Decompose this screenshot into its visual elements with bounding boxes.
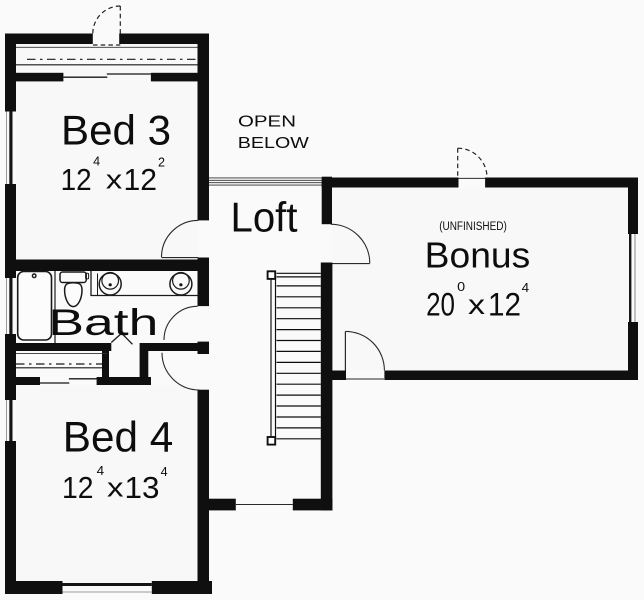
- svg-text:20: 20: [426, 287, 455, 323]
- svg-text:4: 4: [522, 281, 530, 295]
- svg-text:Loft: Loft: [231, 194, 298, 241]
- svg-text:Bath: Bath: [48, 302, 158, 343]
- svg-text:BELOW: BELOW: [238, 135, 309, 152]
- svg-text:OPEN: OPEN: [238, 114, 296, 131]
- svg-text:x: x: [468, 289, 485, 320]
- svg-text:Bed 4: Bed 4: [63, 414, 174, 462]
- svg-text:x: x: [107, 473, 124, 503]
- svg-text:0: 0: [457, 280, 465, 294]
- svg-text:4: 4: [93, 155, 100, 169]
- svg-text:12: 12: [124, 163, 158, 197]
- svg-text:12: 12: [62, 471, 94, 505]
- svg-text:Bed 3: Bed 3: [61, 107, 171, 154]
- svg-text:4: 4: [97, 464, 105, 478]
- svg-text:13: 13: [125, 471, 160, 505]
- svg-text:4: 4: [161, 465, 168, 479]
- svg-text:2: 2: [158, 156, 165, 170]
- svg-text:Bonus: Bonus: [425, 234, 531, 275]
- svg-text:x: x: [106, 165, 123, 195]
- svg-text:12: 12: [488, 287, 521, 323]
- svg-text:(UNFINISHED): (UNFINISHED): [439, 221, 507, 233]
- svg-text:12: 12: [61, 163, 92, 197]
